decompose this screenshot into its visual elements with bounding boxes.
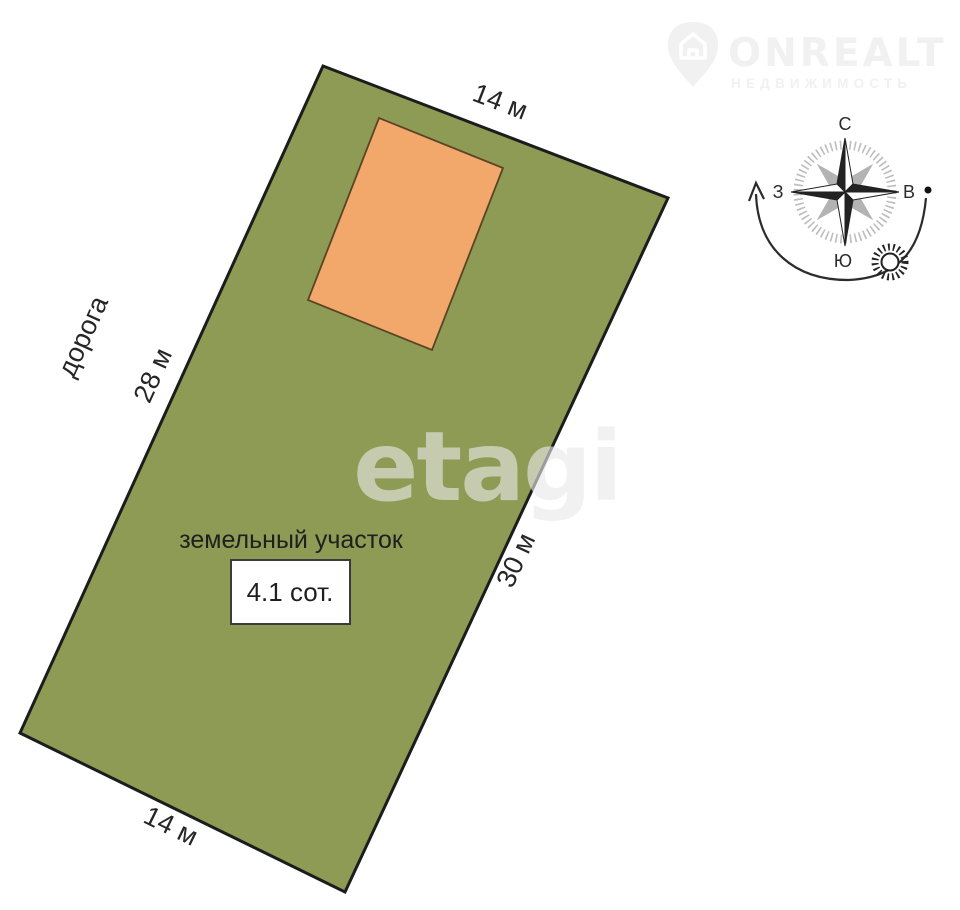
compass-north-label: С <box>839 114 852 134</box>
map-pin-icon <box>668 22 718 87</box>
compass-rose: С Ю З В <box>749 114 932 280</box>
plot-title: земельный участок <box>179 526 404 554</box>
east-dot <box>925 187 932 194</box>
logo-title: ONREALT <box>728 31 947 76</box>
onrealt-logo: ONREALT НЕДВИЖИМОСТЬ <box>668 22 947 91</box>
area-value: 4.1 сот. <box>247 577 334 607</box>
etagi-watermark: etagi <box>353 411 620 523</box>
logo-subtitle: НЕДВИЖИМОСТЬ <box>731 76 912 91</box>
land-plot-diagram: ONREALT НЕДВИЖИМОСТЬ <box>0 0 960 910</box>
left-dimension-label: 28 м <box>128 344 179 407</box>
top-dimension-label: 14 м <box>469 78 532 126</box>
compass-south-label: Ю <box>834 251 852 271</box>
diagram-canvas: ONREALT НЕДВИЖИМОСТЬ <box>0 0 960 910</box>
compass-main-points <box>791 138 899 246</box>
road-label: дорога <box>52 290 115 381</box>
compass-east-label: В <box>903 182 915 202</box>
compass-west-label: З <box>773 182 784 202</box>
